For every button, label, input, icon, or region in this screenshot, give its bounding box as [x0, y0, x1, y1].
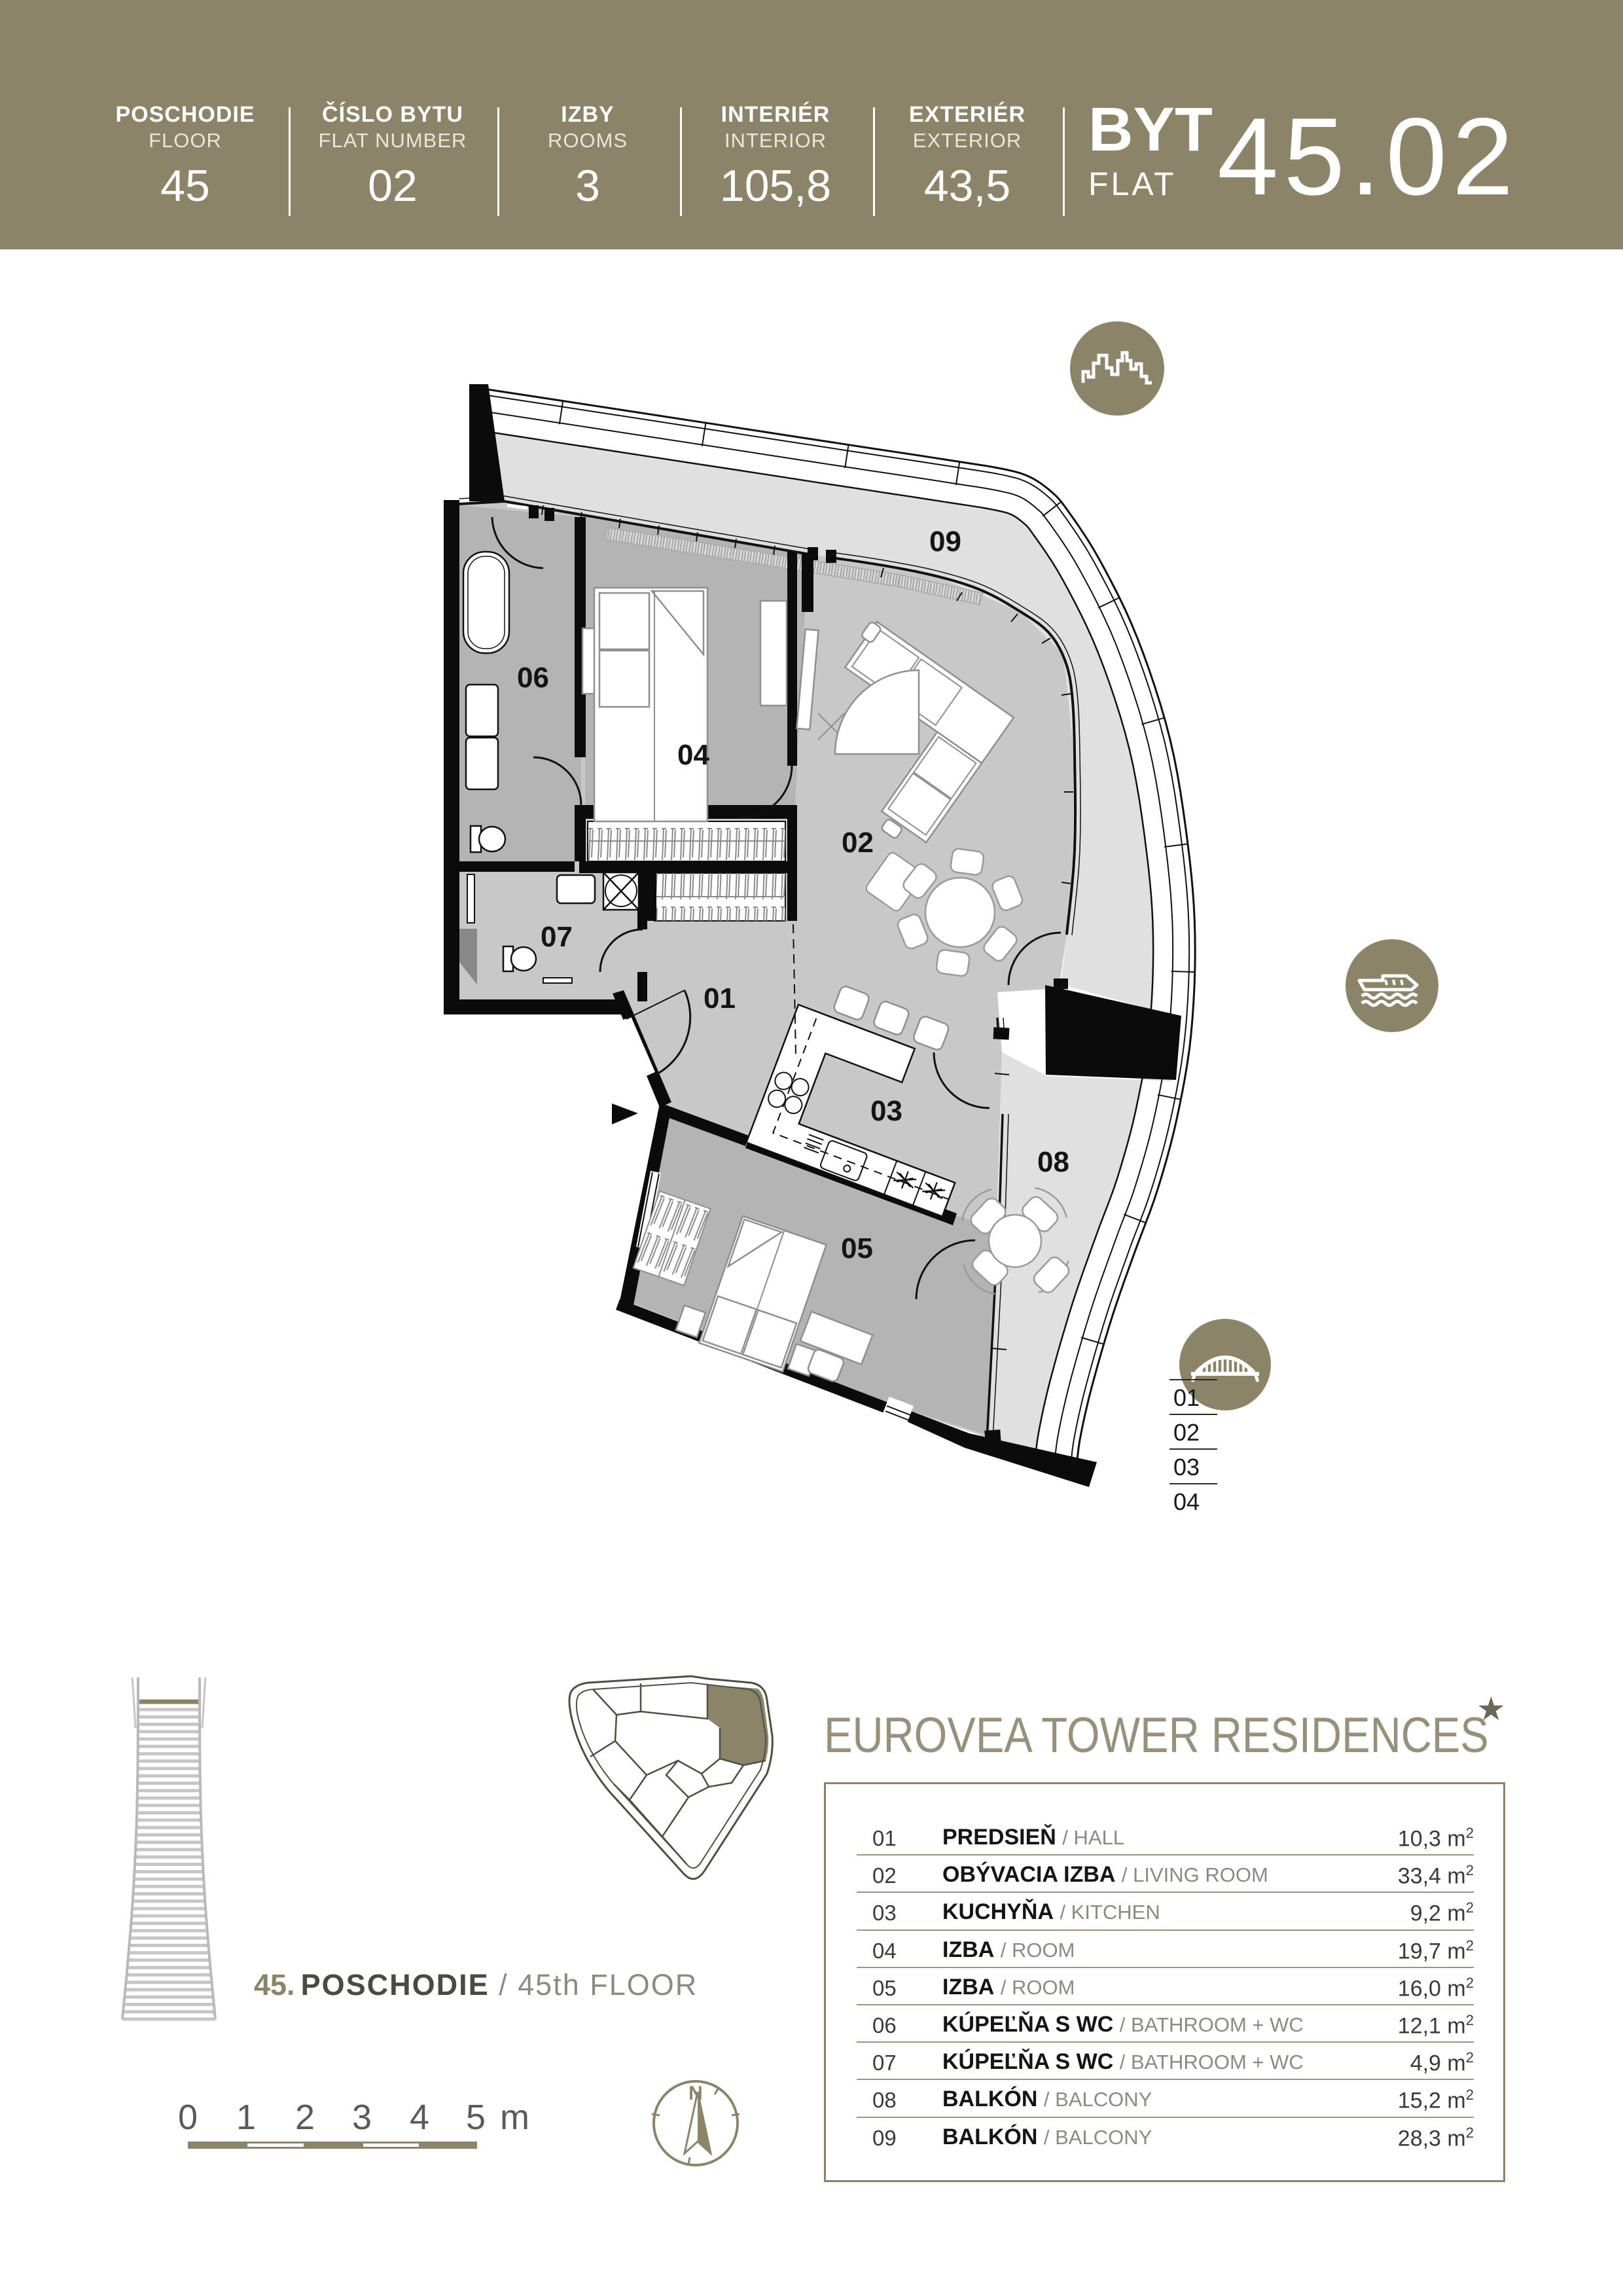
svg-text:m: m [500, 2098, 529, 2137]
svg-text:5: 5 [466, 2098, 486, 2137]
svg-text:1: 1 [236, 2098, 256, 2137]
svg-text:3: 3 [352, 2098, 372, 2137]
svg-text:0: 0 [178, 2098, 198, 2137]
svg-text:2: 2 [295, 2098, 315, 2137]
svg-text:4: 4 [410, 2098, 429, 2137]
